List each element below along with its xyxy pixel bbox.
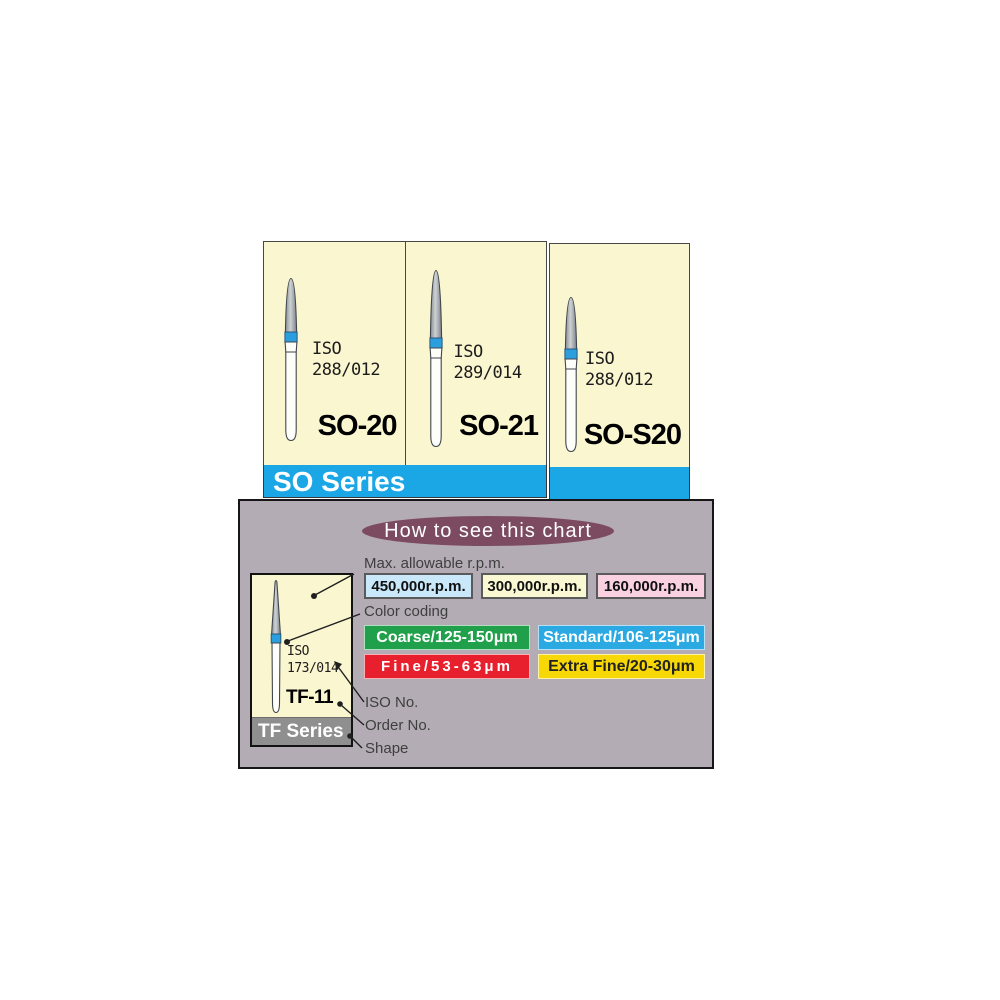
series-banner: SO Series — [263, 465, 547, 498]
catalog-page: ISO 288/012 SO-20 ISO 289/014 SO-21 — [0, 0, 1000, 1000]
grit-option-fine: Fine/53-63μm — [364, 654, 530, 679]
color-coding-label: Color coding — [364, 603, 448, 620]
rpm-options-row: 450,000r.p.m. 300,000r.p.m. 160,000r.p.m… — [364, 573, 706, 599]
grit-options-grid: Coarse/125-150μm Standard/106-125μm Fine… — [364, 625, 705, 679]
iso-number: ISO 289/014 — [454, 342, 522, 384]
product-cards-row: ISO 288/012 SO-20 ISO 289/014 SO-21 — [263, 241, 547, 465]
legend-title: How to see this chart — [384, 520, 592, 543]
rpm-option-450000: 450,000r.p.m. — [364, 573, 473, 599]
grit-option-standard: Standard/106-125μm — [538, 625, 705, 650]
legend-title-oval: How to see this chart — [362, 516, 614, 546]
product-card-so21: ISO 289/014 SO-21 — [405, 242, 547, 465]
so-series-group: ISO 288/012 SO-20 ISO 289/014 SO-21 — [263, 241, 547, 498]
callout-label-shape: Shape — [365, 740, 408, 757]
product-card-so20: ISO 288/012 SO-20 — [264, 242, 405, 465]
rpm-option-160000: 160,000r.p.m. — [596, 573, 706, 599]
rpm-option-300000: 300,000r.p.m. — [481, 573, 588, 599]
legend-panel: How to see this chart Max. allowable r.p… — [238, 499, 714, 769]
iso-number: ISO 173/014 — [287, 643, 338, 677]
dental-bur-icon — [264, 577, 288, 717]
rpm-label: Max. allowable r.p.m. — [364, 555, 505, 572]
dental-bur-icon — [421, 266, 451, 450]
callout-label-iso-no: ISO No. — [365, 694, 418, 711]
so-series-group-right: ISO 288/012 SO-S20 — [549, 243, 690, 500]
example-product-card: ISO 173/014 TF-11 TF Series — [250, 573, 353, 747]
series-banner-label: SO Series — [273, 466, 405, 497]
product-name: SO-21 — [459, 410, 538, 443]
product-name: SO-S20 — [584, 419, 681, 452]
grit-option-extra-fine: Extra Fine/20-30μm — [538, 654, 705, 679]
dental-bur-icon — [276, 274, 306, 444]
dental-bur-icon — [556, 293, 586, 455]
series-banner-continuation — [549, 467, 690, 500]
callout-label-order-no: Order No. — [365, 717, 431, 734]
product-name: TF-11 — [286, 687, 333, 709]
grit-option-coarse: Coarse/125-150μm — [364, 625, 530, 650]
iso-number: ISO 288/012 — [585, 349, 653, 391]
example-series-banner: TF Series — [252, 717, 351, 745]
product-name: SO-20 — [318, 410, 397, 443]
product-card-sos20: ISO 288/012 SO-S20 — [550, 244, 689, 467]
product-cards-row: ISO 288/012 SO-S20 — [549, 243, 690, 467]
iso-number: ISO 288/012 — [312, 339, 380, 381]
